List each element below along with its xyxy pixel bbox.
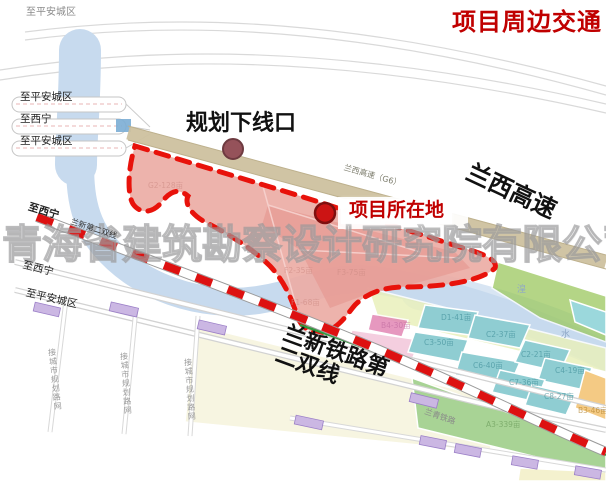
road-label-west3: 至平安城区 <box>20 136 73 147</box>
page-title: 项目周边交通 <box>452 10 602 35</box>
company-watermark: 青海省建筑勘察设计研究院有限公司 <box>2 212 606 270</box>
parcel-label: C2-21亩 <box>521 349 551 360</box>
parcel-label: C6-40亩 <box>473 360 503 371</box>
planning-map: 青海省建筑勘察设计研究院有限公司 项目周边交通 规划下线口 项目所在地 兰西高速… <box>0 0 606 481</box>
parcel-label: D1-41亩 <box>441 312 471 323</box>
road-label-west2: 至西宁 <box>20 114 52 125</box>
road-label-west1: 至平安城区 <box>20 92 73 103</box>
parcel-label: B4-30亩 <box>381 320 411 331</box>
parcel-label: C8-27亩 <box>544 391 574 402</box>
parcel-label: A3-339亩 <box>486 419 520 430</box>
road-label-topleft: 至平安城区 <box>26 8 76 19</box>
parcel-label: C2-37亩 <box>486 329 516 340</box>
project-location-label: 项目所在地 <box>341 199 452 224</box>
parcel-label: G2-128亩 <box>148 180 183 191</box>
planned-exit-dot <box>223 139 243 159</box>
parcel-label: B3-46亩 <box>578 405 606 416</box>
bridge-marker <box>116 119 131 132</box>
parcel-label: C7-36亩 <box>509 377 539 388</box>
planned-exit-label: 规划下线口 <box>186 112 296 135</box>
river-name-char-1: 湟 <box>517 286 526 295</box>
river-name-char-2: 水 <box>561 331 570 340</box>
parcel-label: F3-75亩 <box>337 267 366 278</box>
parcel-label: F2-35亩 <box>284 265 313 276</box>
parcel-label: C4-19亩 <box>555 365 585 376</box>
parcel-label: C3-50亩 <box>424 337 454 348</box>
parcel-label: F1-68亩 <box>291 297 320 308</box>
